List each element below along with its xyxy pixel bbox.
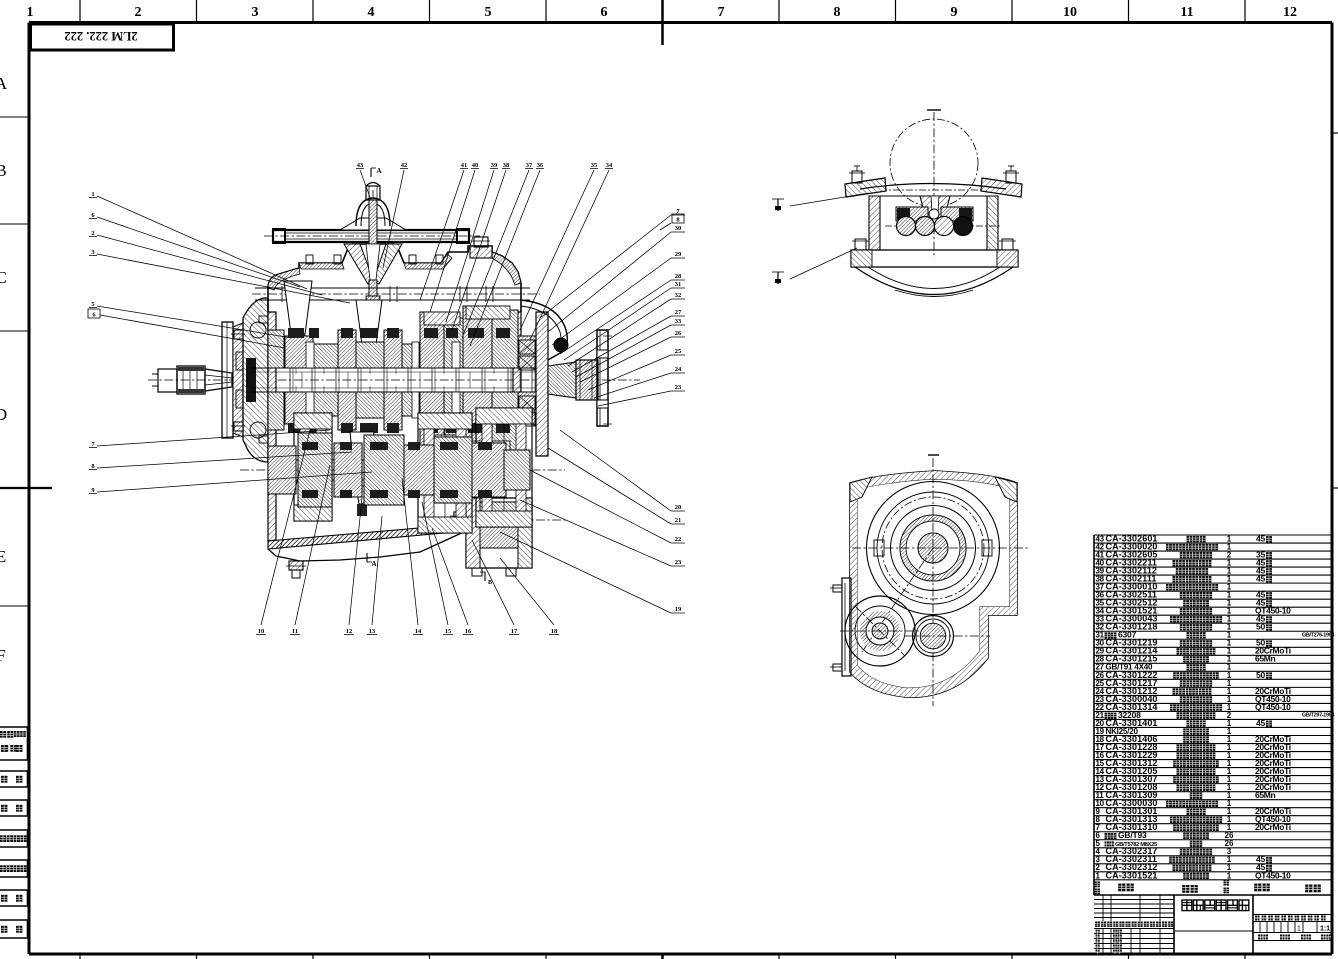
svg-text:15: 15	[445, 628, 452, 635]
svg-text:C: C	[0, 268, 7, 287]
svg-text:A: A	[376, 167, 381, 175]
svg-text:5: 5	[485, 5, 492, 20]
svg-text:20: 20	[675, 504, 682, 511]
svg-text:65Mn: 65Mn	[1255, 654, 1275, 664]
svg-text:38: 38	[503, 162, 510, 169]
svg-text:1: 1	[1227, 871, 1232, 880]
svg-text:41: 41	[461, 162, 468, 169]
svg-text:20CrMoTi: 20CrMoTi	[1255, 822, 1291, 832]
svg-text:QT450-10: QT450-10	[1255, 870, 1291, 880]
svg-text:7: 7	[718, 5, 725, 20]
svg-text:1: 1	[27, 5, 34, 20]
svg-text:34: 34	[606, 162, 613, 169]
svg-text:45: 45	[1256, 574, 1266, 584]
svg-text:37: 37	[526, 162, 533, 169]
svg-text:GB/T297-1994: GB/T297-1994	[1302, 713, 1334, 719]
svg-text:GB/T276-1994: GB/T276-1994	[1302, 632, 1334, 638]
svg-text:F: F	[0, 646, 6, 665]
svg-text:3: 3	[252, 5, 259, 20]
svg-text:13: 13	[369, 628, 376, 635]
svg-text:23: 23	[675, 384, 682, 391]
svg-text:50: 50	[1256, 670, 1266, 680]
svg-text:43: 43	[357, 162, 364, 169]
svg-text:8: 8	[834, 5, 841, 20]
svg-text:1: 1	[1297, 926, 1301, 933]
svg-text:21: 21	[675, 517, 682, 524]
svg-text:16: 16	[465, 628, 472, 635]
svg-text:A: A	[371, 560, 376, 568]
svg-text:2: 2	[91, 230, 94, 237]
svg-text:11: 11	[292, 628, 298, 635]
svg-text:E: E	[0, 547, 6, 566]
svg-text:6: 6	[601, 5, 608, 20]
svg-text:35: 35	[591, 162, 598, 169]
svg-text:D: D	[0, 405, 7, 424]
svg-text:28: 28	[675, 273, 682, 280]
svg-text:23: 23	[675, 559, 682, 566]
svg-text:14: 14	[415, 628, 422, 635]
svg-text:39: 39	[491, 162, 498, 169]
svg-text:11: 11	[1180, 5, 1193, 20]
svg-text:GB/T93: GB/T93	[1118, 830, 1147, 840]
svg-text:12: 12	[1283, 5, 1297, 20]
svg-text:A: A	[0, 74, 8, 93]
svg-text:30: 30	[675, 225, 682, 232]
svg-text:65Mn: 65Mn	[1255, 790, 1275, 800]
svg-text:1: 1	[91, 191, 94, 198]
svg-text:25: 25	[675, 348, 682, 355]
svg-text:17: 17	[511, 628, 518, 635]
svg-text:2: 2	[135, 5, 142, 20]
svg-text:42: 42	[401, 162, 408, 169]
svg-text:45: 45	[1256, 718, 1266, 728]
svg-text:31: 31	[675, 281, 682, 288]
svg-text:32: 32	[675, 292, 682, 299]
svg-text:27: 27	[675, 309, 682, 316]
svg-text:45: 45	[1256, 533, 1266, 543]
svg-text:26: 26	[675, 330, 682, 337]
svg-text:29: 29	[675, 251, 682, 258]
svg-text:36: 36	[537, 162, 544, 169]
svg-text:1:1: 1:1	[1320, 926, 1330, 933]
svg-text:40: 40	[472, 162, 479, 169]
svg-text:10: 10	[1063, 5, 1077, 20]
svg-text:B: B	[488, 580, 492, 586]
svg-text:CA-3301521: CA-3301521	[1106, 870, 1158, 880]
svg-text:12: 12	[346, 628, 353, 635]
svg-text:19: 19	[675, 606, 682, 613]
svg-text:33: 33	[675, 318, 682, 325]
svg-text:4: 4	[368, 5, 375, 20]
svg-text:2LM 222. 222: 2LM 222. 222	[64, 29, 137, 43]
svg-text:QT450-10: QT450-10	[1255, 702, 1291, 712]
svg-text:50: 50	[1256, 622, 1266, 632]
svg-text:24: 24	[675, 366, 682, 373]
svg-text:9: 9	[951, 5, 958, 20]
svg-text:10: 10	[258, 628, 265, 635]
svg-text:18: 18	[551, 628, 558, 635]
svg-text:22: 22	[675, 536, 682, 543]
svg-text:B: B	[0, 161, 7, 180]
